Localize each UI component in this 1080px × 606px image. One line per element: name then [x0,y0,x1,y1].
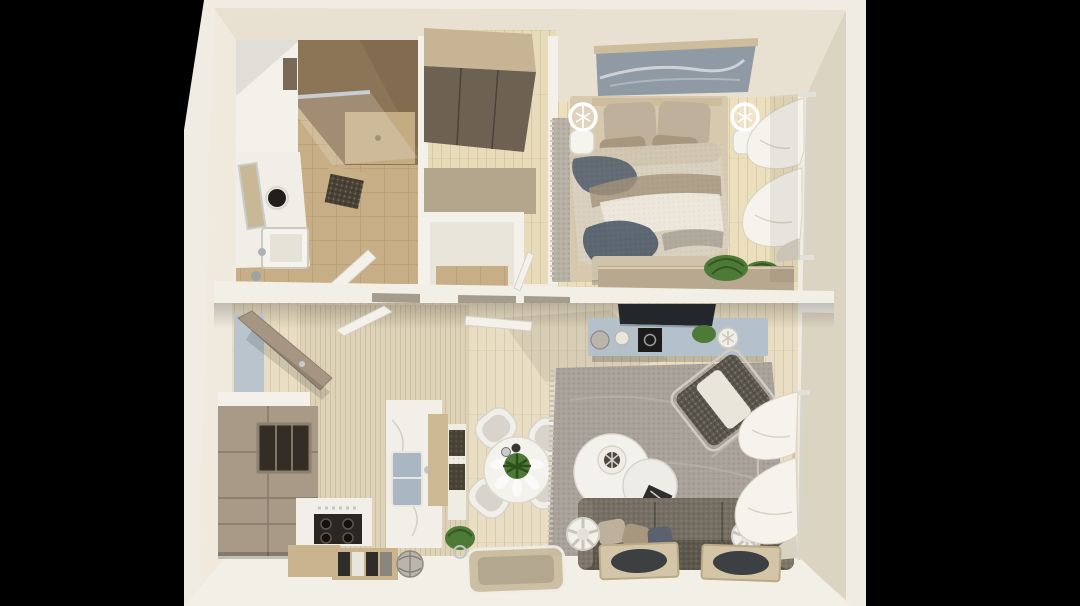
leaning-framed-tray [599,543,678,580]
patterned-blanket [569,142,731,270]
dresser-plant [704,255,748,281]
decor-sphere [591,331,609,349]
door-handle [299,361,305,367]
burner [343,533,353,543]
rod-cap [798,255,814,260]
basket-weave [449,430,465,490]
burner [321,519,331,529]
oven-niche [258,424,310,472]
entry-shelf [218,392,310,406]
island-wood-panel [428,414,448,506]
leaning-framed-tray [701,545,780,582]
towel-holder [283,58,297,90]
burner [321,533,331,543]
round-basin [268,189,286,207]
faucet [258,248,266,256]
tv [618,304,716,326]
wall-art [594,38,758,96]
glass-tray [467,546,564,593]
doorway-slot [372,293,420,303]
floor-drain-fitting [251,271,261,281]
closet-hall [420,28,556,304]
console-plant [692,325,716,343]
espresso-cup [502,448,511,457]
bathroom [236,40,418,294]
apartment-model-photo [0,0,1080,606]
decor-vase [615,331,629,345]
wc-north-wall [424,168,536,214]
wardrobe-top [424,28,536,72]
decor-camera [638,328,662,352]
photo-canvas [0,0,1080,606]
drum-stool-left [567,518,599,550]
lamp-base [570,130,594,154]
espresso-cup [512,444,521,453]
east-floor-shadow [770,94,798,282]
burner [343,519,353,529]
square-sink-basin [270,234,302,262]
living-area [214,303,834,594]
wardrobe-doors [424,66,536,152]
rod-cap [800,92,816,97]
